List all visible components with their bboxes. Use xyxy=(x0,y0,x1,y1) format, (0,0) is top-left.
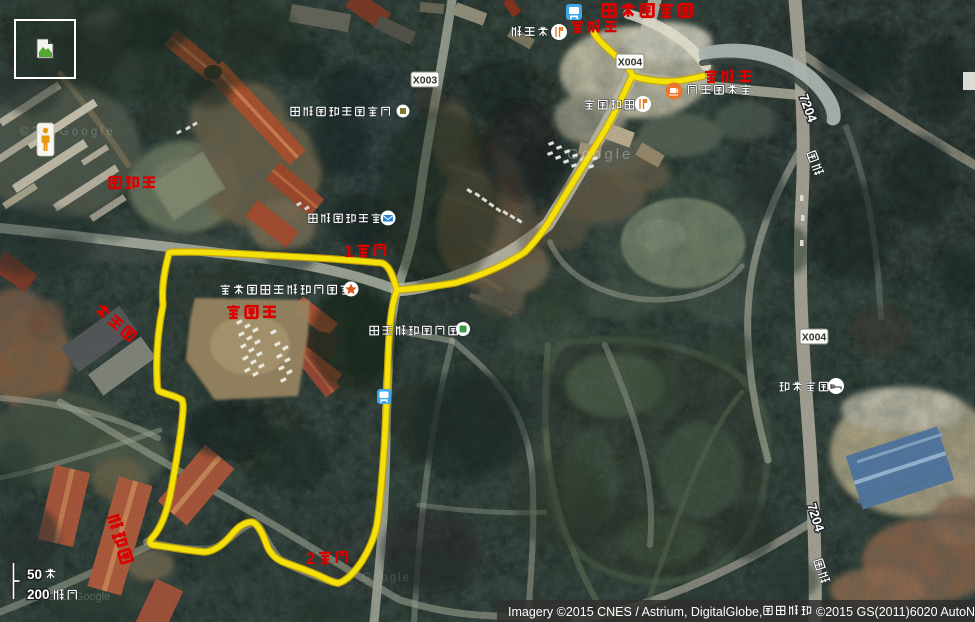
svg-text:© 2011 G o o g l e: © 2011 G o o g l e xyxy=(20,126,113,138)
svg-text:1: 1 xyxy=(344,242,353,261)
svg-text:Imagery ©2015 CNES / Astrium,: Imagery ©2015 CNES / Astrium, DigitalGlo… xyxy=(508,605,762,619)
svg-text:Google: Google xyxy=(362,572,411,584)
svg-text:X004: X004 xyxy=(802,332,827,344)
svg-text:©2015 GS(2011)6020 AutoNa: ©2015 GS(2011)6020 AutoNa xyxy=(816,605,975,619)
svg-text:Google: Google xyxy=(567,146,633,163)
svg-text:X003: X003 xyxy=(413,75,438,87)
svg-text:2: 2 xyxy=(306,549,315,568)
svg-text:200: 200 xyxy=(27,587,50,602)
svg-text:X004: X004 xyxy=(618,57,643,69)
svg-text:50: 50 xyxy=(27,567,42,582)
